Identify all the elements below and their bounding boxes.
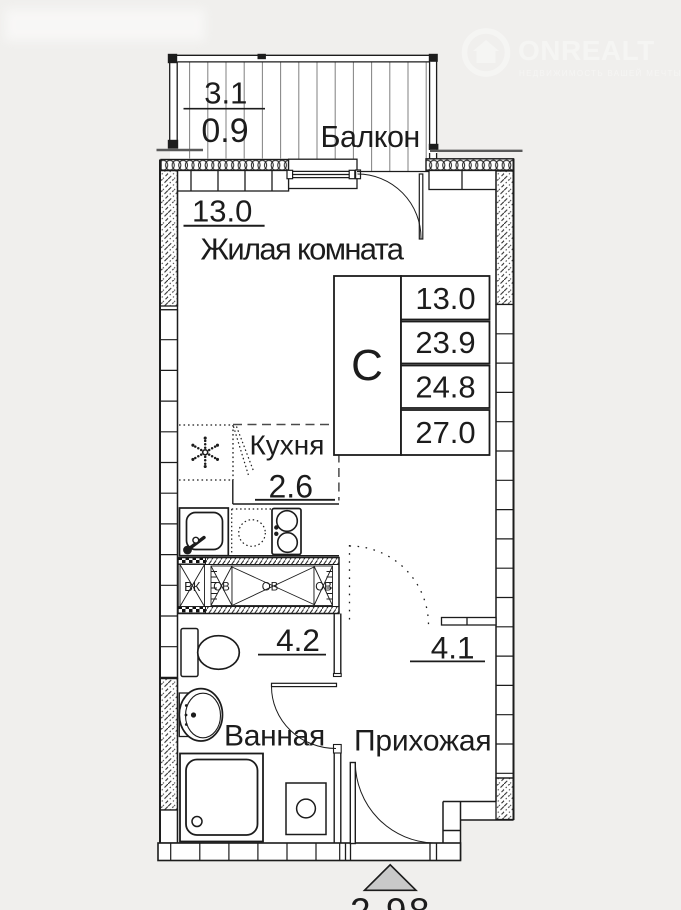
- svg-text:4.1: 4.1: [431, 630, 475, 666]
- svg-text:ОВ: ОВ: [315, 582, 332, 594]
- svg-text:Жилая комната: Жилая комната: [201, 232, 405, 267]
- svg-text:Прихожая: Прихожая: [354, 725, 491, 758]
- svg-text:Балкон: Балкон: [321, 120, 420, 154]
- svg-text:2.98: 2.98: [350, 891, 432, 910]
- svg-text:13.0: 13.0: [192, 194, 252, 229]
- svg-text:ONREALT: ONREALT: [518, 35, 655, 66]
- svg-text:Ванная: Ванная: [224, 719, 325, 752]
- svg-text:23.9: 23.9: [415, 325, 475, 360]
- svg-text:13.0: 13.0: [415, 281, 475, 316]
- svg-text:24.8: 24.8: [415, 370, 475, 405]
- svg-text:Кухня: Кухня: [250, 430, 325, 461]
- svg-text:4.2: 4.2: [276, 622, 320, 658]
- svg-text:С: С: [351, 341, 383, 390]
- svg-text:ОВ: ОВ: [213, 582, 230, 594]
- svg-text:ОВ: ОВ: [262, 582, 279, 594]
- svg-text:27.0: 27.0: [415, 415, 475, 450]
- svg-text:ВК: ВК: [184, 579, 201, 594]
- svg-text:0.9: 0.9: [201, 112, 248, 150]
- svg-text:НЕДВИЖИМОСТЬ ВАШЕЙ МЕЧТЫ: НЕДВИЖИМОСТЬ ВАШЕЙ МЕЧТЫ: [519, 69, 681, 78]
- svg-text:3.1: 3.1: [204, 76, 247, 111]
